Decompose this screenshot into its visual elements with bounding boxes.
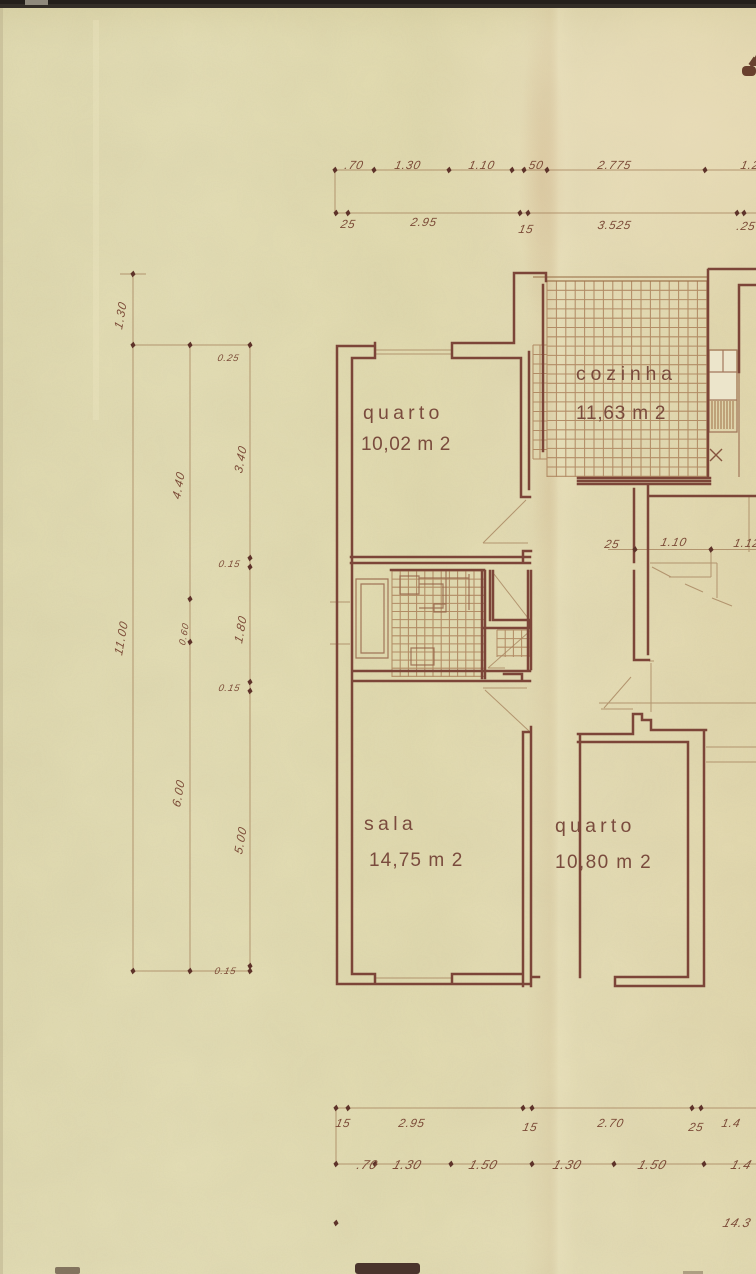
svg-text:25: 25: [338, 217, 357, 231]
svg-text:14.3: 14.3: [721, 1215, 753, 1230]
svg-text:0.15: 0.15: [217, 683, 241, 694]
svg-text:2.95: 2.95: [396, 1116, 426, 1130]
svg-text:1.25: 1.25: [739, 158, 756, 172]
svg-text:1.30: 1.30: [551, 1157, 584, 1172]
svg-text:.70: .70: [343, 158, 365, 172]
svg-text:1.30: 1.30: [391, 1157, 424, 1172]
svg-text:25: 25: [686, 1120, 705, 1134]
svg-text:3.525: 3.525: [596, 218, 632, 232]
svg-text:15: 15: [517, 222, 535, 236]
svg-text:2.70: 2.70: [595, 1116, 625, 1130]
svg-text:cozinha: cozinha: [576, 363, 677, 385]
svg-text:2.95: 2.95: [408, 215, 438, 229]
svg-text:1.50: 1.50: [636, 1157, 669, 1172]
svg-text:sala: sala: [364, 813, 417, 835]
svg-text:15: 15: [521, 1120, 539, 1134]
svg-text:25: 25: [602, 537, 621, 551]
svg-text:.50: .50: [523, 158, 545, 172]
svg-text:1.12: 1.12: [732, 536, 756, 550]
svg-text:.25: .25: [735, 219, 756, 233]
svg-text:1.4: 1.4: [720, 1116, 742, 1130]
svg-text:15: 15: [334, 1116, 352, 1130]
svg-text:1.30: 1.30: [393, 158, 422, 172]
svg-text:1.50: 1.50: [467, 1157, 500, 1172]
svg-text:quarto: quarto: [555, 815, 636, 837]
svg-text:2.775: 2.775: [595, 158, 632, 172]
svg-text:1.10: 1.10: [467, 158, 496, 172]
svg-text:14,75 m 2: 14,75 m 2: [369, 850, 463, 871]
svg-text:10,02 m 2: 10,02 m 2: [361, 434, 451, 455]
svg-text:11,63 m 2: 11,63 m 2: [576, 403, 666, 424]
svg-text:quarto: quarto: [363, 402, 444, 424]
svg-text:0.15: 0.15: [213, 966, 237, 977]
svg-text:0.25: 0.25: [216, 353, 240, 364]
svg-text:10,80 m 2: 10,80 m 2: [555, 852, 652, 873]
svg-text:1.10: 1.10: [659, 535, 688, 549]
svg-text:0.15: 0.15: [217, 559, 241, 570]
